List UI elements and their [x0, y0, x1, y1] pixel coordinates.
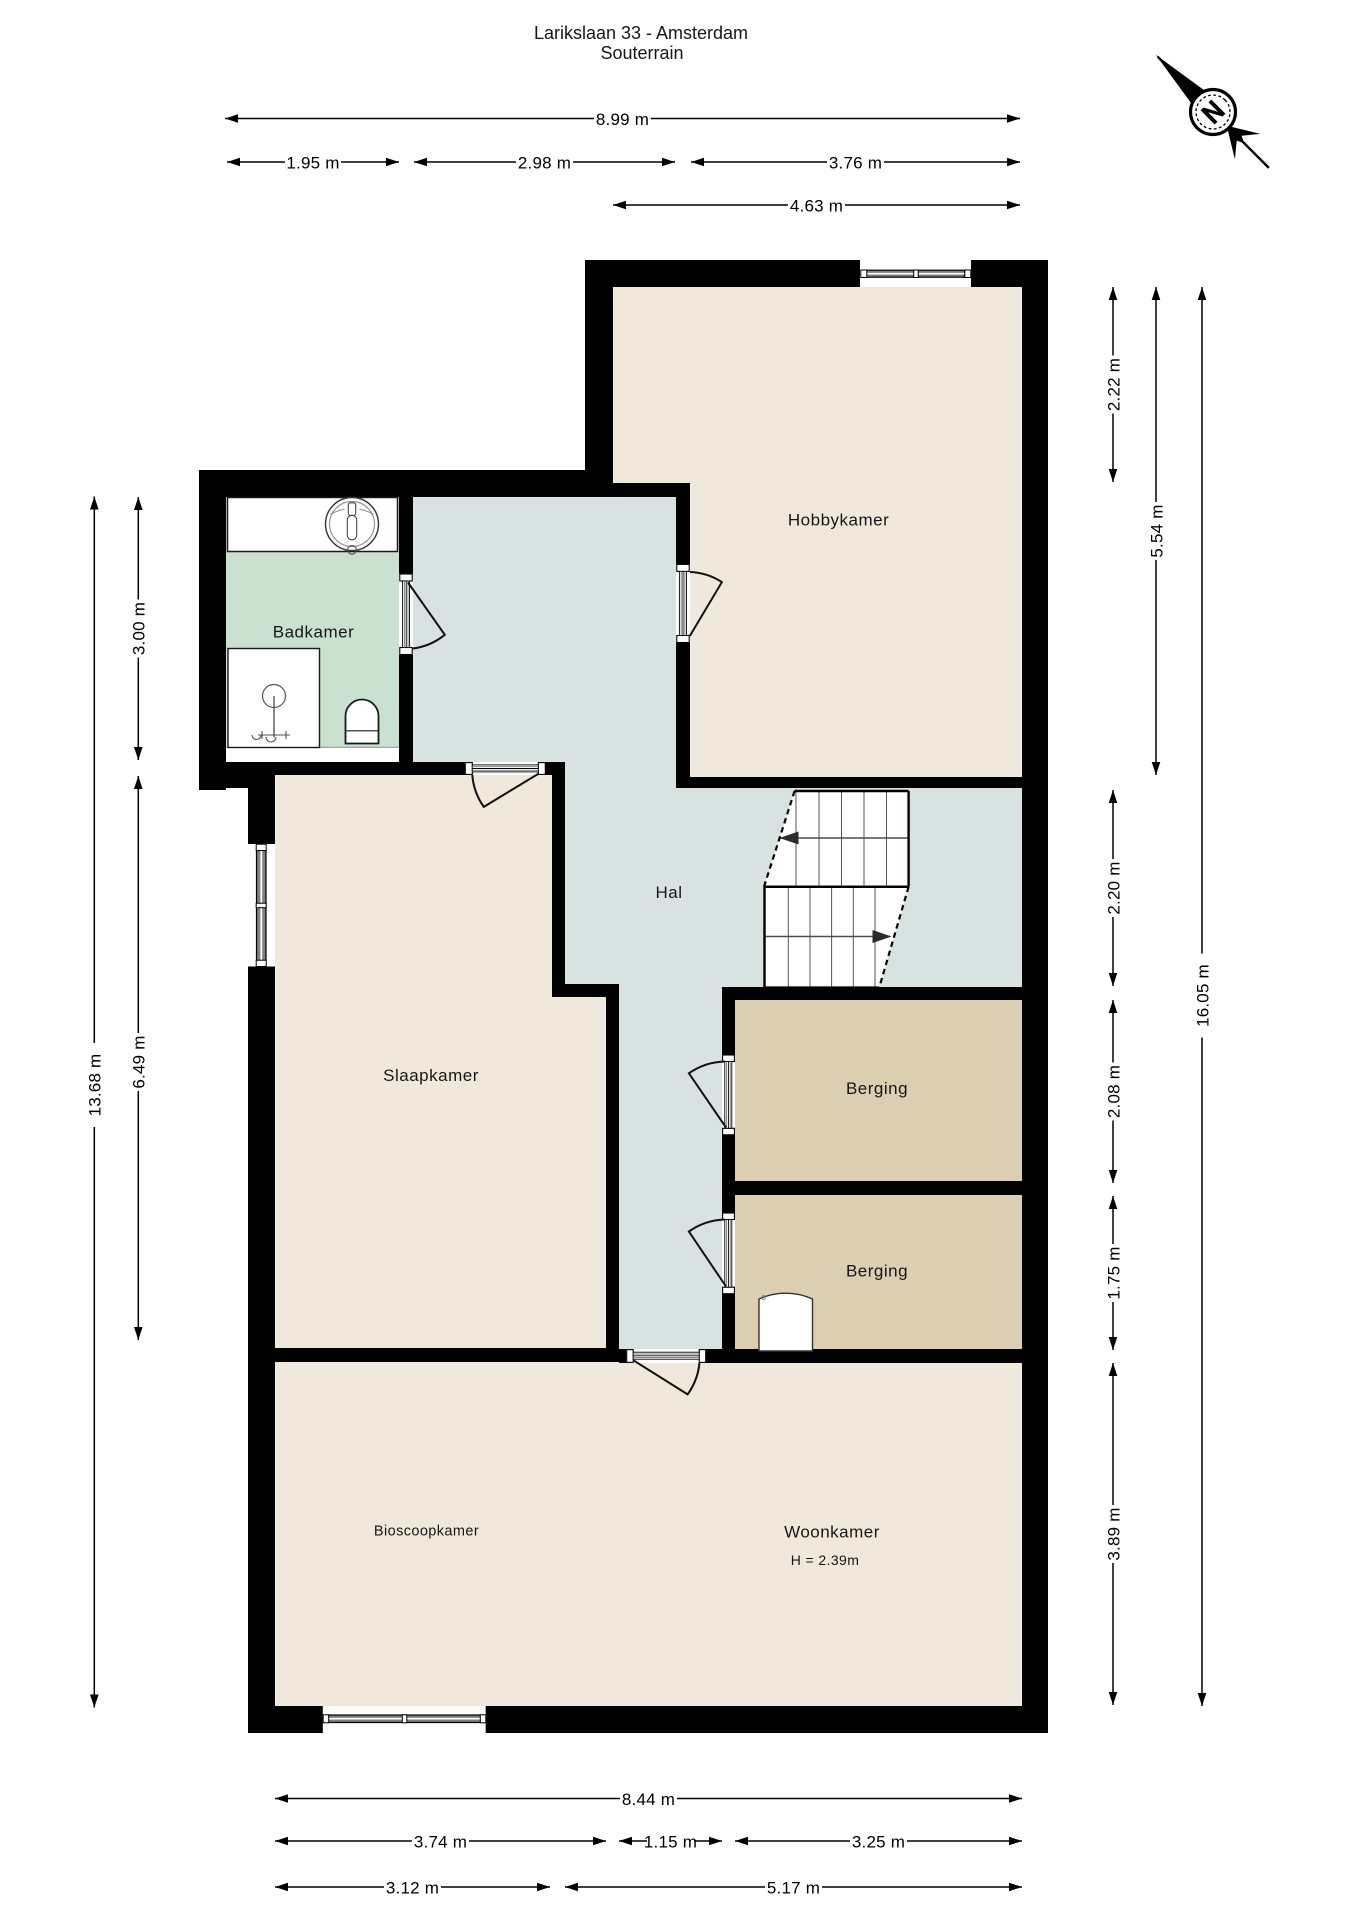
svg-text:5.17 m: 5.17 m	[767, 1878, 820, 1897]
svg-text:1.95 m: 1.95 m	[286, 153, 339, 172]
svg-text:3.76 m: 3.76 m	[829, 153, 882, 172]
svg-text:Berging: Berging	[846, 1262, 908, 1281]
svg-text:1.15 m: 1.15 m	[644, 1832, 697, 1851]
svg-text:4.63 m: 4.63 m	[790, 196, 843, 215]
svg-text:2.20 m: 2.20 m	[1104, 861, 1123, 914]
svg-text:2.98 m: 2.98 m	[518, 153, 571, 172]
svg-text:Hal: Hal	[655, 883, 682, 902]
svg-text:8.44 m: 8.44 m	[622, 1790, 675, 1809]
svg-text:13.68 m: 13.68 m	[86, 1054, 105, 1117]
svg-text:Hobbykamer: Hobbykamer	[788, 510, 889, 529]
svg-text:Berging: Berging	[846, 1079, 908, 1098]
svg-text:Woonkamer: Woonkamer	[784, 1523, 880, 1542]
svg-text:H = 2.39m: H = 2.39m	[791, 1552, 860, 1568]
svg-text:3.00 m: 3.00 m	[130, 602, 149, 655]
svg-text:3.25 m: 3.25 m	[852, 1832, 905, 1851]
svg-text:3.74 m: 3.74 m	[414, 1832, 467, 1851]
svg-text:Badkamer: Badkamer	[273, 622, 354, 641]
svg-text:6.49 m: 6.49 m	[130, 1035, 149, 1088]
svg-text:5.54 m: 5.54 m	[1147, 504, 1166, 557]
svg-text:2.08 m: 2.08 m	[1104, 1065, 1123, 1118]
svg-text:2.22 m: 2.22 m	[1104, 358, 1123, 411]
svg-text:1.75 m: 1.75 m	[1104, 1246, 1123, 1299]
svg-text:Larikslaan 33 - Amsterdam: Larikslaan 33 - Amsterdam	[534, 23, 748, 43]
svg-text:16.05 m: 16.05 m	[1193, 964, 1212, 1027]
svg-text:Souterrain: Souterrain	[600, 43, 683, 63]
svg-text:Slaapkamer: Slaapkamer	[383, 1066, 479, 1085]
svg-text:8.99 m: 8.99 m	[596, 110, 649, 129]
svg-text:Bioscoopkamer: Bioscoopkamer	[374, 1523, 479, 1539]
svg-text:3.89 m: 3.89 m	[1104, 1507, 1123, 1560]
svg-text:3.12 m: 3.12 m	[386, 1878, 439, 1897]
